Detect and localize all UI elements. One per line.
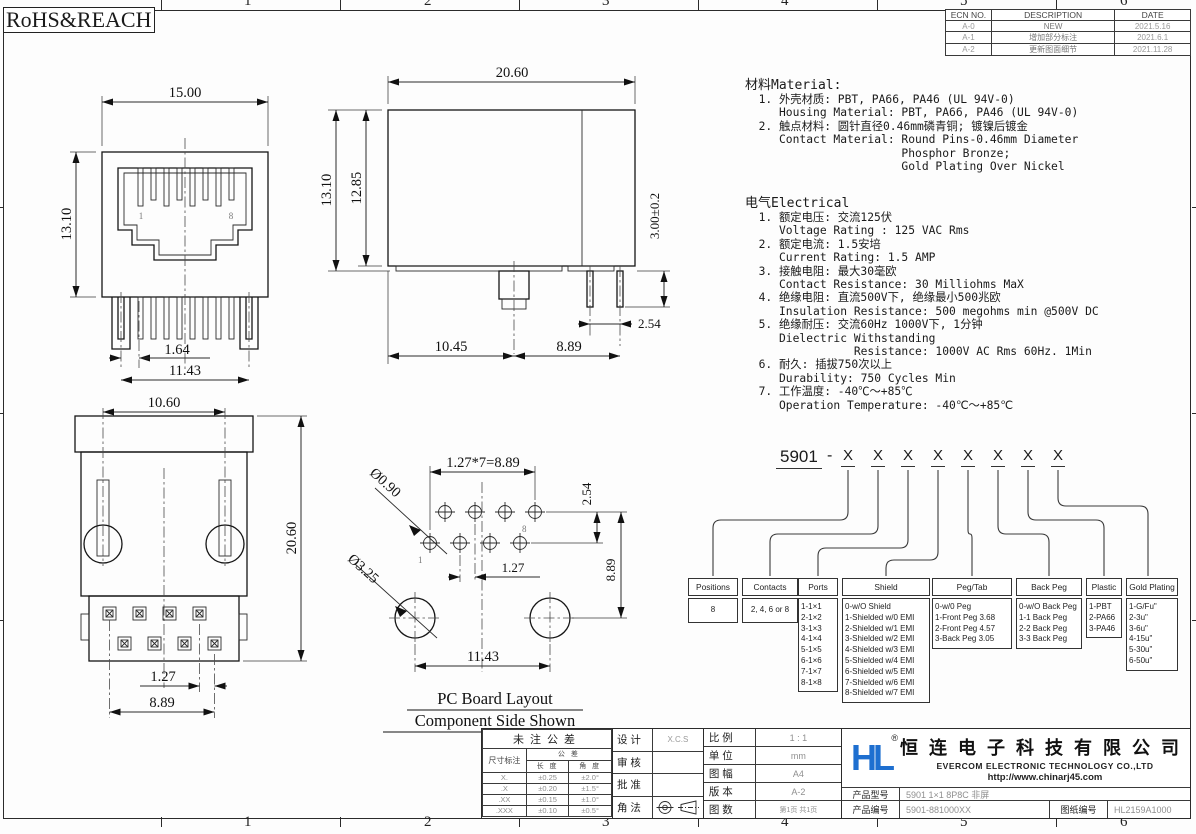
part-number-label: 产品编号 (842, 801, 900, 818)
option-item: 1-G/Fu" (1129, 602, 1176, 613)
option-item: 2, 4, 6 or 8 (743, 605, 797, 616)
approve-value (653, 774, 703, 796)
ecn-header-cell: DATE (1115, 10, 1191, 21)
option-item: 8-Shielded w/7 EMI (845, 688, 928, 699)
ecn-description: 更新图面细节 (991, 44, 1114, 56)
option-table-contacts: Contacts 2, 4, 6 or 8 (742, 578, 798, 623)
option-item: 4-1×4 (801, 634, 836, 645)
registered-mark: ® (891, 733, 898, 743)
company-section: HL ® 恒连电子科技有限公司 EVERCOM ELECTRONIC TECHN… (842, 729, 1190, 818)
bottom-view-drawing: 10.60 20.60 1.27 8.89 (45, 388, 335, 736)
spec-line: 3. 接触电阻: 最大30毫欧 (745, 265, 1195, 278)
option-item: 7-1×7 (801, 667, 836, 678)
part-number-digit: X (871, 447, 885, 467)
ecn-description: 增加部分标注 (991, 32, 1114, 44)
ecn-date: 2021.11.28 (1115, 44, 1191, 56)
option-item: 3-Shielded w/2 EMI (845, 634, 928, 645)
hl-logo-mark: HL (851, 740, 891, 776)
spec-line: Voltage Rating : 125 VAC Rms (745, 224, 1195, 237)
dim-pcb-peg-dia: Ø3.25 (344, 551, 381, 587)
dim-side-height2: 12.85 (349, 172, 365, 205)
zone-number: 1 (244, 814, 252, 831)
option-item: 4-Shielded w/3 EMI (845, 645, 928, 656)
hole8-label: 8 (522, 524, 527, 534)
sheets-label: 图 数 (704, 801, 756, 818)
dim-bottom-total-height: 20.60 (284, 522, 300, 555)
projection-label: 角 法 (613, 797, 653, 819)
rohs-reach-badge: RoHS&REACH (3, 7, 155, 33)
option-item: 1-Shielded w/0 EMI (845, 613, 928, 624)
unit-value: mm (756, 747, 841, 764)
size-label: 图 幅 (704, 765, 756, 782)
third-angle-projection-icon (656, 799, 700, 816)
option-item: 1-1 Back Peg (1019, 613, 1080, 624)
dim-bottom-peg-span: 10.60 (148, 395, 181, 411)
dim-side-depth: 20.60 (496, 65, 529, 81)
option-item: 3-Back Peg 3.05 (935, 634, 1010, 645)
review-value (653, 752, 703, 774)
part-number-leader-lines (680, 470, 1196, 578)
option-item: 5-1×5 (801, 645, 836, 656)
tolerance-table: 未注公差 尺寸标注 公 差 长 度 角 度 X. ±0.25 ±2.0° .X … (482, 729, 613, 818)
option-item: 1-Front Peg 3.68 (935, 613, 1010, 624)
tolerance-row: .XX ±0.15 ±1.0° (483, 794, 612, 805)
zone-number: 2 (424, 0, 432, 10)
side-view-drawing: 20.60 13.10 12.85 3.00±0.2 2.54 10.45 8.… (312, 56, 680, 392)
ecn-no: A-2 (946, 44, 992, 56)
option-table-shield: Shield 0-w/O Shield1-Shielded w/0 EMI2-S… (842, 578, 930, 703)
spec-line: Insulation Resistance: 500 megohms min @… (745, 305, 1195, 318)
spec-line: 7. 工作温度: -40℃～+85℃ (745, 385, 1195, 398)
part-number-digit: X (991, 447, 1005, 467)
pcb-caption-line1: PC Board Layout (437, 689, 553, 708)
option-item: 6-Shielded w/5 EMI (845, 667, 928, 678)
dim-pcb-hole-dia: Ø0.90 (366, 465, 403, 501)
dim-pcb-pitch: 1.27*7=8.89 (446, 455, 519, 471)
option-table-title: Shield (842, 578, 930, 596)
option-item: 4-15u" (1129, 634, 1176, 645)
company-logo: HL ® (842, 729, 900, 787)
drawing-number-value: HL2159A1000 (1108, 801, 1190, 818)
spec-line: Current Rating: 1.5 AMP (745, 251, 1195, 264)
option-item: 2-2 Back Peg (1019, 624, 1080, 635)
option-table-title: Contacts (742, 578, 798, 596)
option-item: 3-PA46 (1089, 624, 1120, 635)
pcb-layout-drawing: 8 1 1.27*7=8.89 2.54 8.89 1.27 11.43 Ø0.… (335, 420, 675, 734)
option-item: 0-w/0 Peg (935, 602, 1010, 613)
ecn-row: A-1 增加部分标注 2021.6.1 (946, 32, 1191, 44)
front-view-drawing: 15.00 1 8 1.64 11.43 13.10 (40, 56, 310, 390)
zone-number: 2 (424, 814, 432, 831)
option-item: 2-PA66 (1089, 613, 1120, 624)
option-item: 7-Shielded w/6 EMI (845, 678, 928, 689)
ecn-header-cell: DESCRIPTION (991, 10, 1114, 21)
option-table-title: Plastic (1086, 578, 1122, 596)
company-name-en: EVERCOM ELECTRONIC TECHNOLOGY CO.,LTD (937, 761, 1154, 771)
dim-bottom-pin-span: 8.89 (149, 695, 174, 711)
part-number-digit: X (931, 447, 945, 467)
part-number-digit: X (961, 447, 975, 467)
material-spec: 材料Material: 1. 外壳材质: PBT, PA66, PA46 (UL… (745, 78, 1195, 173)
option-item: 8-1×8 (801, 678, 836, 689)
dim-front-height: 13.10 (59, 208, 75, 241)
title-block: 未注公差 尺寸标注 公 差 长 度 角 度 X. ±0.25 ±2.0° .X … (481, 728, 1191, 819)
ecn-date: 2021.5.16 (1115, 21, 1191, 32)
dim-pcb-half-pitch: 1.27 (502, 560, 525, 575)
dim-pcb-row-gap: 2.54 (579, 482, 594, 505)
unit-label: 单 位 (704, 747, 756, 764)
option-item: 6-50u" (1129, 656, 1176, 667)
version-value: A-2 (756, 783, 841, 800)
tolerance-title: 未注公差 (483, 730, 612, 749)
option-item: 2-1×2 (801, 613, 836, 624)
bottom-pins (103, 607, 221, 650)
option-table-plastic: Plastic 1-PBT2-PA663-PA46 (1086, 578, 1122, 638)
dim-bottom-row-offset: 1.27 (150, 669, 175, 685)
spec-line: 1. 额定电压: 交流125伏 (745, 211, 1195, 224)
option-item: 2-Front Peg 4.57 (935, 624, 1010, 635)
option-item: 3-6u" (1129, 624, 1176, 635)
design-value: X.C.S (653, 729, 703, 751)
ecn-row: A-0 NEW 2021.5.16 (946, 21, 1191, 32)
approval-section: 设 计 X.C.S 审 核 批 准 角 法 (613, 729, 704, 818)
spec-line: Contact Resistance: 30 Milliohms MaX (745, 278, 1195, 291)
zone-number: 1 (244, 0, 252, 10)
projection-value (653, 797, 703, 819)
option-item: 6-1×6 (801, 656, 836, 667)
tolerance-row: .X ±0.20 ±1.5° (483, 783, 612, 794)
option-item: 2-Shielded w/1 EMI (845, 624, 928, 635)
option-item: 0-w/O Shield (845, 602, 928, 613)
material-title: 材料Material: (745, 78, 1195, 93)
spec-line: Operation Temperature: -40℃～+85℃ (745, 399, 1195, 412)
spec-line: Gold Plating Over Nickel (745, 160, 1195, 173)
option-table-title: Peg/Tab (932, 578, 1012, 596)
option-item: 3-3 Back Peg (1019, 634, 1080, 645)
dim-side-height: 13.10 (319, 174, 335, 207)
part-number-digit: X (1021, 447, 1035, 467)
tolerance-sub-angle: 角 度 (569, 760, 612, 772)
review-label: 审 核 (613, 752, 653, 774)
dim-side-back-length: 8.89 (556, 339, 581, 355)
option-item: 2-3u" (1129, 613, 1176, 624)
spec-line: 2. 触点材料: 圆针直径0.46mm磷青铜; 镀镍后镀金 (745, 120, 1195, 133)
option-table-positions: Positions 8 (688, 578, 738, 623)
scale-value: 1 : 1 (756, 729, 841, 746)
tolerance-col-dim: 尺寸标注 (483, 748, 527, 772)
sheets-value: 第1页 共1页 (756, 801, 841, 818)
part-number-digit: X (901, 447, 915, 467)
dim-side-front-length: 10.45 (435, 339, 468, 355)
tolerance-col-tol: 公 差 (526, 748, 611, 760)
option-table-title: Gold Plating (1126, 578, 1178, 596)
spec-line: 6. 耐久: 插拔750次以上 (745, 358, 1195, 371)
company-name-cn: 恒连电子科技有限公司 (900, 734, 1190, 760)
spec-line: 1. 外壳材质: PBT, PA66, PA46 (UL 94V-0) (745, 93, 1195, 106)
part-number-dash: - (827, 447, 832, 465)
spec-line: Phosphor Bronze; (745, 147, 1195, 160)
spec-line: 2. 额定电流: 1.5安培 (745, 238, 1195, 251)
dim-side-pin-pitch: 2.54 (638, 316, 661, 331)
spec-line: 5. 绝缘耐压: 交流60Hz 1000V下, 1分钟 (745, 318, 1195, 331)
pin1-label: 1 (139, 211, 144, 221)
leader-arrow (395, 606, 407, 617)
tolerance-row: X. ±0.25 ±2.0° (483, 772, 612, 783)
spec-line: 4. 绝缘电阻: 直流500V下, 绝缘最小500兆欧 (745, 291, 1195, 304)
solder-legs (138, 297, 234, 339)
option-item: 0-w/O Back Peg (1019, 602, 1080, 613)
company-url[interactable]: http://www.chinarj45.com (988, 772, 1103, 783)
ecn-row: A-2 更新图面细节 2021.11.28 (946, 44, 1191, 56)
option-table-title: Ports (798, 578, 838, 596)
electrical-spec: 电气Electrical 1. 额定电压: 交流125伏 Voltage Rat… (745, 196, 1195, 412)
drawing-number-label: 图纸编号 (1050, 801, 1108, 818)
ecn-no: A-1 (946, 32, 992, 44)
dim-front-width: 15.00 (169, 85, 202, 101)
ecn-table: ECN NO.DESCRIPTIONDATE A-0 NEW 2021.5.16… (945, 9, 1191, 56)
option-table-ports: Ports 1-1×12-1×23-1×34-1×45-1×56-1×67-1×… (798, 578, 838, 692)
approve-label: 批 准 (613, 774, 653, 796)
ecn-no: A-0 (946, 21, 992, 32)
option-item: 8 (689, 605, 737, 616)
hole1-label: 1 (418, 555, 423, 565)
spec-line: Dielectric Withstanding (745, 332, 1195, 345)
model-value: 5901 1×1 8P8C 非屏 (900, 788, 1190, 800)
option-table-backpeg: Back Peg 0-w/O Back Peg1-1 Back Peg2-2 B… (1016, 578, 1082, 649)
spec-line: Resistance: 1000V AC Rms 60Hz. 1Min (745, 345, 1195, 358)
option-table-gold: Gold Plating 1-G/Fu"2-3u"3-6u"4-15u"5-30… (1126, 578, 1178, 671)
option-table-title: Back Peg (1016, 578, 1082, 596)
scale-label: 比 例 (704, 729, 756, 746)
ecn-date: 2021.6.1 (1115, 32, 1191, 44)
option-item: 3-1×3 (801, 624, 836, 635)
part-number-value: 5901-881000XX (900, 801, 1050, 818)
spec-line: Contact Material: Round Pins-0.46mm Diam… (745, 133, 1195, 146)
option-item: 5-30u" (1129, 645, 1176, 656)
dim-side-pin-length: 3.00±0.2 (647, 193, 662, 239)
ecn-header-cell: ECN NO. (946, 10, 992, 21)
part-number-digit: X (1051, 447, 1065, 467)
version-label: 版 本 (704, 783, 756, 800)
part-number-prefix: 5901 (776, 447, 822, 469)
contact-slots (138, 168, 234, 206)
dim-pcb-hole-span: 8.89 (603, 559, 618, 582)
model-label: 产品型号 (842, 788, 900, 800)
option-table-pegtab: Peg/Tab 0-w/0 Peg1-Front Peg 3.682-Front… (932, 578, 1012, 649)
zone-number: 3 (602, 0, 610, 10)
pin8-label: 8 (229, 211, 234, 221)
spec-line: Durability: 750 Cycles Min (745, 372, 1195, 385)
info-section: 比 例 1 : 1 单 位 mm 图 幅 A4 版 本 A-2 图 数 第1页 … (704, 729, 842, 818)
dim-front-pin-span: 11.43 (169, 363, 201, 379)
option-table-title: Positions (688, 578, 738, 596)
part-number-digit: X (841, 447, 855, 467)
tolerance-row: .XXX ±0.10 ±0.5° (483, 805, 612, 816)
electrical-title: 电气Electrical (745, 196, 1195, 211)
leader-arrow (409, 525, 421, 536)
option-item: 1-PBT (1089, 602, 1120, 613)
design-label: 设 计 (613, 729, 653, 751)
size-value: A4 (756, 765, 841, 782)
spec-line: Housing Material: PBT, PA66, PA46 (UL 94… (745, 106, 1195, 119)
dim-front-pin-offset: 1.64 (164, 342, 190, 358)
dim-pcb-peg-span: 11.43 (467, 649, 499, 665)
option-item: 5-Shielded w/4 EMI (845, 656, 928, 667)
ecn-description: NEW (991, 21, 1114, 32)
tolerance-sub-length: 长 度 (526, 760, 569, 772)
option-item: 1-1×1 (801, 602, 836, 613)
zone-number: 4 (781, 0, 789, 10)
